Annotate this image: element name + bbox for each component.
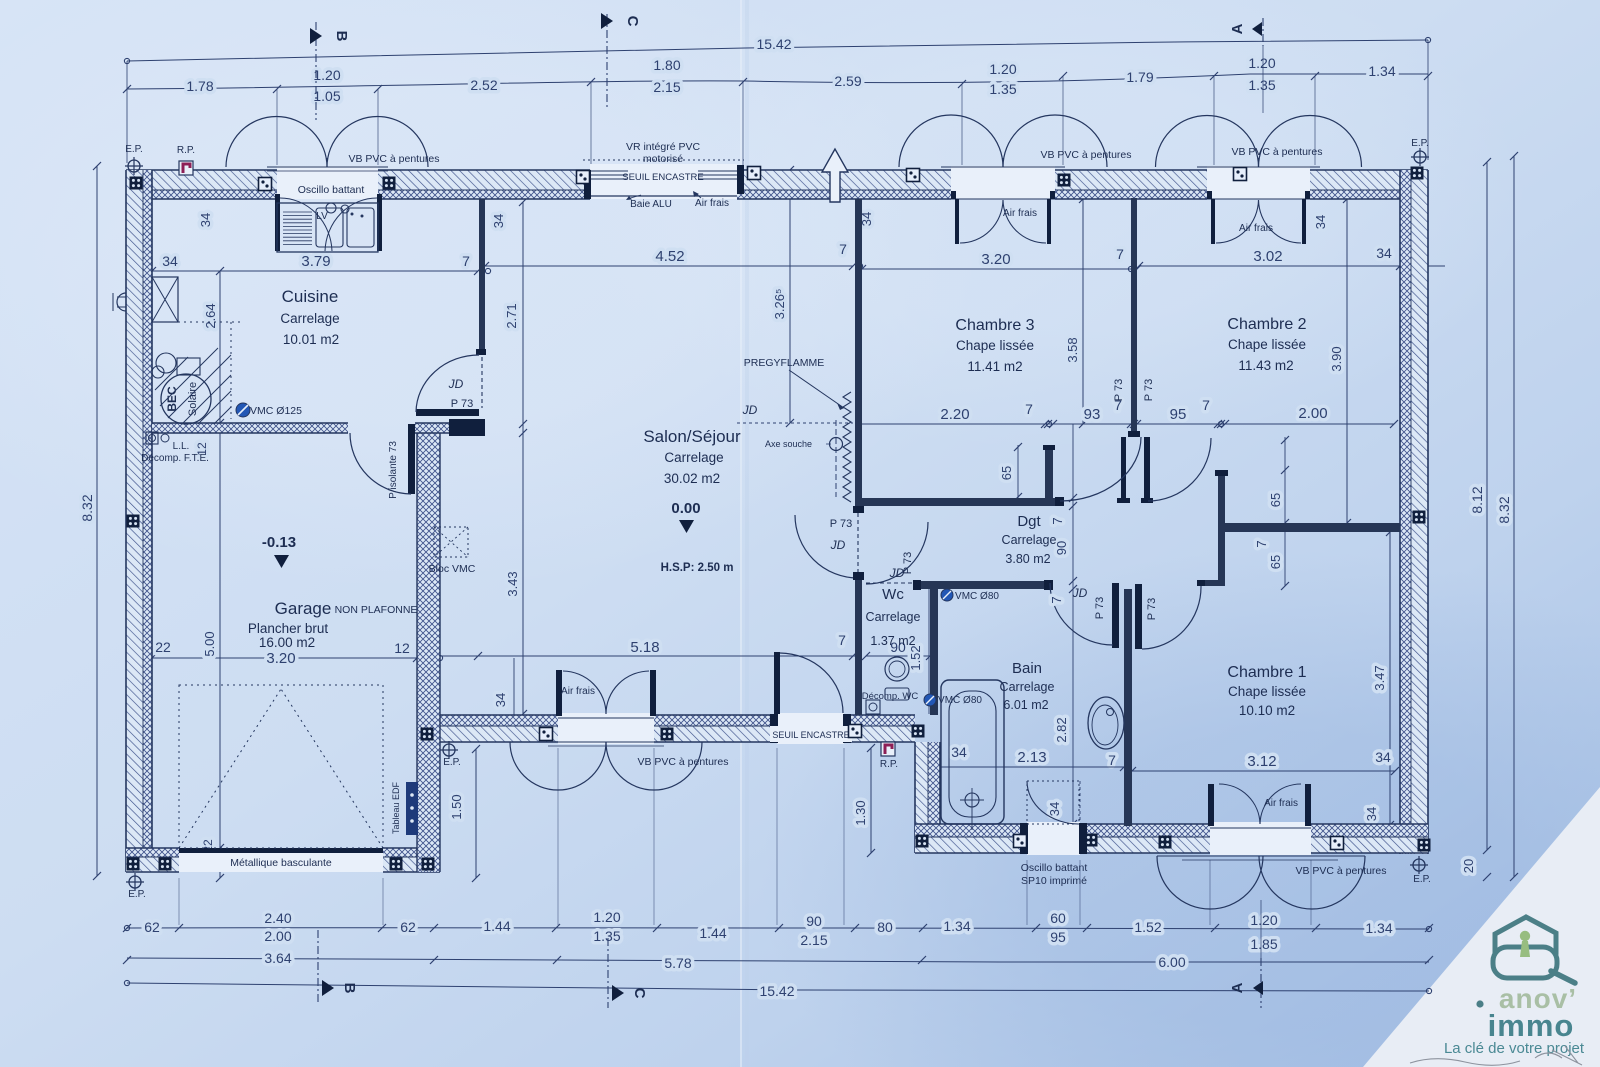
svg-text:JD: JD <box>448 377 464 391</box>
svg-text:1.37 m2: 1.37 m2 <box>870 634 915 648</box>
svg-text:1.30: 1.30 <box>853 800 868 825</box>
svg-text:1.20: 1.20 <box>1248 55 1275 71</box>
svg-text:10.10 m2: 10.10 m2 <box>1239 703 1295 718</box>
svg-text:Air frais: Air frais <box>695 198 729 209</box>
svg-text:immo: immo <box>1488 1008 1575 1043</box>
svg-text:L.L.: L.L. <box>173 441 190 452</box>
svg-text:2.20: 2.20 <box>940 406 969 423</box>
svg-text:1.20: 1.20 <box>989 61 1016 77</box>
svg-text:C: C <box>631 988 648 999</box>
svg-text:Air frais: Air frais <box>1003 208 1037 219</box>
svg-text:34: 34 <box>1047 802 1062 816</box>
svg-text:La clé de votre projet: La clé de votre projet <box>1444 1040 1585 1057</box>
svg-text:VB PVC à pentures: VB PVC à pentures <box>1295 865 1386 877</box>
svg-text:R.P.: R.P. <box>177 145 195 156</box>
svg-text:Chape lissée: Chape lissée <box>1228 684 1306 699</box>
svg-text:P 73: P 73 <box>451 398 473 410</box>
svg-text:2.71: 2.71 <box>504 303 519 328</box>
svg-text:5.18: 5.18 <box>630 639 659 656</box>
svg-text:VMC Ø80: VMC Ø80 <box>955 591 999 602</box>
svg-text:1.34: 1.34 <box>1365 920 1392 936</box>
svg-text:P 73: P 73 <box>1094 597 1106 619</box>
svg-text:Décomp. WC: Décomp. WC <box>862 691 919 702</box>
svg-text:Air frais: Air frais <box>1264 798 1298 809</box>
svg-text:2.52: 2.52 <box>470 77 497 93</box>
svg-text:B: B <box>341 983 358 994</box>
svg-text:65: 65 <box>1268 555 1283 569</box>
svg-text:VB PVC à pentures: VB PVC à pentures <box>1040 149 1131 161</box>
svg-text:11.43 m2: 11.43 m2 <box>1238 358 1293 373</box>
svg-text:2.40: 2.40 <box>264 910 291 926</box>
svg-text:30.02 m2: 30.02 m2 <box>664 471 720 486</box>
svg-text:93: 93 <box>1084 406 1101 423</box>
svg-text:1.35: 1.35 <box>1248 77 1275 93</box>
svg-text:8.32: 8.32 <box>79 494 95 521</box>
svg-text:7: 7 <box>1254 540 1269 547</box>
svg-text:3.20: 3.20 <box>981 251 1010 268</box>
svg-text:34: 34 <box>162 253 178 269</box>
svg-text:VB PVC à pentures: VB PVC à pentures <box>348 153 439 165</box>
svg-text:R.P.: R.P. <box>880 759 898 770</box>
svg-text:7: 7 <box>839 241 847 257</box>
svg-text:P 73: P 73 <box>902 552 914 574</box>
svg-text:62: 62 <box>144 919 160 935</box>
svg-text:Carrelage: Carrelage <box>866 610 921 624</box>
svg-text:7: 7 <box>838 632 846 648</box>
svg-text:VMC Ø125: VMC Ø125 <box>250 405 302 417</box>
svg-text:3.26⁵: 3.26⁵ <box>772 289 787 320</box>
svg-text:7: 7 <box>1202 397 1210 413</box>
svg-text:3.20: 3.20 <box>266 650 295 667</box>
svg-text:1.85: 1.85 <box>1250 936 1277 952</box>
svg-text:Carrelage: Carrelage <box>280 311 339 326</box>
svg-text:H.S.P: 2.50 m: H.S.P: 2.50 m <box>661 562 734 574</box>
svg-text:Carrelage: Carrelage <box>664 450 723 465</box>
svg-text:A: A <box>1229 23 1246 34</box>
svg-text:1.20: 1.20 <box>1250 912 1277 928</box>
svg-text:P 73: P 73 <box>830 518 852 530</box>
svg-text:2.00: 2.00 <box>1298 405 1327 422</box>
svg-text:34: 34 <box>491 214 506 228</box>
svg-text:Carrelage: Carrelage <box>1000 680 1055 694</box>
svg-text:P/isolante 73: P/isolante 73 <box>388 441 399 499</box>
svg-text:-0.13: -0.13 <box>262 534 296 551</box>
svg-text:80: 80 <box>877 919 893 935</box>
svg-text:20: 20 <box>1461 859 1476 873</box>
svg-text:3.80 m2: 3.80 m2 <box>1005 552 1050 566</box>
svg-text:SEUIL ENCASTRE: SEUIL ENCASTRE <box>772 730 849 740</box>
svg-text:16.00 m2: 16.00 m2 <box>259 635 315 650</box>
svg-text:JD: JD <box>830 538 846 552</box>
svg-text:Chape lissée: Chape lissée <box>1228 337 1306 352</box>
svg-text:E.P.: E.P. <box>128 889 146 900</box>
svg-text:Plancher brut: Plancher brut <box>248 621 329 636</box>
svg-text:E.P.: E.P. <box>125 144 143 155</box>
svg-text:15.42: 15.42 <box>756 36 791 52</box>
svg-text:7: 7 <box>1049 596 1064 603</box>
svg-text:3.02: 3.02 <box>1253 248 1282 265</box>
svg-text:2.82: 2.82 <box>1054 717 1069 742</box>
svg-text:2.64: 2.64 <box>203 303 218 328</box>
svg-text:1.20: 1.20 <box>313 67 340 83</box>
svg-text:3.47: 3.47 <box>1372 665 1387 690</box>
svg-text:34: 34 <box>1375 749 1391 765</box>
svg-text:3.12: 3.12 <box>1247 753 1276 770</box>
svg-text:5.78: 5.78 <box>664 955 691 971</box>
svg-text:15.42: 15.42 <box>759 983 794 999</box>
svg-text:1.34: 1.34 <box>943 918 970 934</box>
svg-text:62: 62 <box>400 919 416 935</box>
svg-text:7: 7 <box>462 253 470 269</box>
svg-text:95: 95 <box>1050 929 1066 945</box>
svg-text:Dgt: Dgt <box>1017 513 1041 530</box>
svg-text:11.41 m2: 11.41 m2 <box>967 359 1022 374</box>
svg-text:7: 7 <box>1050 517 1065 524</box>
svg-text:1.05: 1.05 <box>313 88 340 104</box>
svg-text:2.00: 2.00 <box>264 928 291 944</box>
svg-text:7: 7 <box>1025 401 1033 417</box>
svg-text:Bain: Bain <box>1012 660 1042 677</box>
svg-text:Salon/Séjour: Salon/Séjour <box>643 427 741 446</box>
svg-text:1.44: 1.44 <box>483 918 510 934</box>
svg-text:7: 7 <box>1108 752 1116 768</box>
svg-text:1.52: 1.52 <box>1134 919 1161 935</box>
svg-text:22: 22 <box>155 639 171 655</box>
svg-text:95: 95 <box>1170 406 1187 423</box>
svg-text:E.P.: E.P. <box>1411 138 1429 149</box>
svg-text:1.44: 1.44 <box>699 925 726 941</box>
svg-text:2.15: 2.15 <box>800 932 827 948</box>
svg-text:Chambre 3: Chambre 3 <box>955 317 1034 334</box>
svg-text:Décomp. F.T.E.: Décomp. F.T.E. <box>141 453 209 464</box>
svg-text:A: A <box>1229 982 1246 993</box>
svg-text:1.79: 1.79 <box>1126 69 1153 85</box>
svg-text:3.58: 3.58 <box>1065 337 1080 362</box>
svg-text:5.00: 5.00 <box>202 631 217 656</box>
svg-text:1.34: 1.34 <box>1368 63 1395 79</box>
svg-text:VB PVC à pentures: VB PVC à pentures <box>637 756 728 768</box>
svg-text:Bloc VMC: Bloc VMC <box>429 563 476 575</box>
svg-text:90: 90 <box>806 913 822 929</box>
svg-text:Air frais: Air frais <box>561 686 595 697</box>
svg-text:Baie ALU: Baie ALU <box>630 199 672 210</box>
svg-text:C: C <box>624 16 641 27</box>
svg-text:Solaire: Solaire <box>187 382 199 416</box>
svg-text:34: 34 <box>1313 215 1328 229</box>
svg-text:P 73: P 73 <box>1146 598 1158 620</box>
svg-text:8.12: 8.12 <box>1469 486 1485 513</box>
svg-text:JD: JD <box>742 403 758 417</box>
svg-text:6.01 m2: 6.01 m2 <box>1003 698 1048 712</box>
svg-text:6.00: 6.00 <box>1158 954 1185 970</box>
svg-text:65: 65 <box>999 466 1014 480</box>
svg-text:Chape lissée: Chape lissée <box>956 338 1034 353</box>
svg-text:E.P.: E.P. <box>1413 874 1431 885</box>
svg-text:P 73: P 73 <box>1113 379 1125 401</box>
svg-text:Oscillo battant: Oscillo battant <box>298 184 365 196</box>
svg-text:Chambre 1: Chambre 1 <box>1227 664 1306 681</box>
svg-text:65: 65 <box>1268 493 1283 507</box>
svg-text:1.35: 1.35 <box>593 928 620 944</box>
svg-text:1.52: 1.52 <box>908 645 923 670</box>
svg-text:SEUIL ENCASTRE: SEUIL ENCASTRE <box>622 172 703 183</box>
svg-text:Wc: Wc <box>882 586 904 603</box>
svg-text:60: 60 <box>1050 910 1066 926</box>
svg-text:2.13: 2.13 <box>1017 749 1046 766</box>
svg-text:3.79: 3.79 <box>301 253 330 270</box>
svg-text:PREGYFLAMME: PREGYFLAMME <box>744 357 825 369</box>
svg-text:3.64: 3.64 <box>264 950 291 966</box>
svg-text:VMC Ø80: VMC Ø80 <box>938 695 982 706</box>
svg-text:VB PVC à pentures: VB PVC à pentures <box>1231 146 1322 158</box>
svg-text:Axe souche: Axe souche <box>765 439 812 449</box>
svg-text:10.01 m2: 10.01 m2 <box>283 332 339 347</box>
svg-text:3.43: 3.43 <box>505 571 520 596</box>
svg-text:P 73: P 73 <box>1143 379 1155 401</box>
svg-text:E.P.: E.P. <box>443 757 461 768</box>
svg-text:Métallique basculante: Métallique basculante <box>230 857 332 869</box>
svg-text:34: 34 <box>198 213 213 227</box>
svg-text:8.32: 8.32 <box>1496 496 1512 523</box>
svg-text:2.15: 2.15 <box>653 79 680 95</box>
svg-text:NON PLAFONNE: NON PLAFONNE <box>335 604 418 616</box>
svg-text:7: 7 <box>1116 246 1124 262</box>
svg-text:0.00: 0.00 <box>671 500 700 517</box>
svg-text:Oscillo battant: Oscillo battant <box>1021 862 1088 874</box>
svg-text:34: 34 <box>1364 807 1379 821</box>
svg-text:VR intégré PVC: VR intégré PVC <box>626 141 701 153</box>
svg-text:LV: LV <box>316 211 328 222</box>
svg-text:Garage: Garage <box>275 599 332 618</box>
svg-text:1.80: 1.80 <box>653 57 680 73</box>
svg-text:1.50: 1.50 <box>449 794 464 819</box>
svg-text:2.59: 2.59 <box>834 73 861 89</box>
svg-text:1.35: 1.35 <box>989 81 1016 97</box>
svg-text:1.20: 1.20 <box>593 909 620 925</box>
svg-text:Tableau EDF: Tableau EDF <box>391 781 401 834</box>
svg-text:1.78: 1.78 <box>186 78 213 94</box>
svg-text:12: 12 <box>394 640 410 656</box>
svg-text:motorisé: motorisé <box>643 153 683 165</box>
svg-text:3.90: 3.90 <box>1329 346 1344 371</box>
svg-text:34: 34 <box>1376 245 1392 261</box>
svg-text:34: 34 <box>493 693 508 707</box>
svg-text:SP10 imprimé: SP10 imprimé <box>1021 875 1087 887</box>
svg-text:JD: JD <box>1072 586 1088 600</box>
svg-text:Carrelage: Carrelage <box>1002 533 1057 547</box>
svg-text:4.52: 4.52 <box>655 248 684 265</box>
svg-text:34: 34 <box>951 744 967 760</box>
svg-text:Air frais: Air frais <box>1239 223 1273 234</box>
svg-text:B: B <box>333 31 350 42</box>
svg-text:Chambre 2: Chambre 2 <box>1227 316 1306 333</box>
svg-text:Cuisine: Cuisine <box>282 287 339 306</box>
